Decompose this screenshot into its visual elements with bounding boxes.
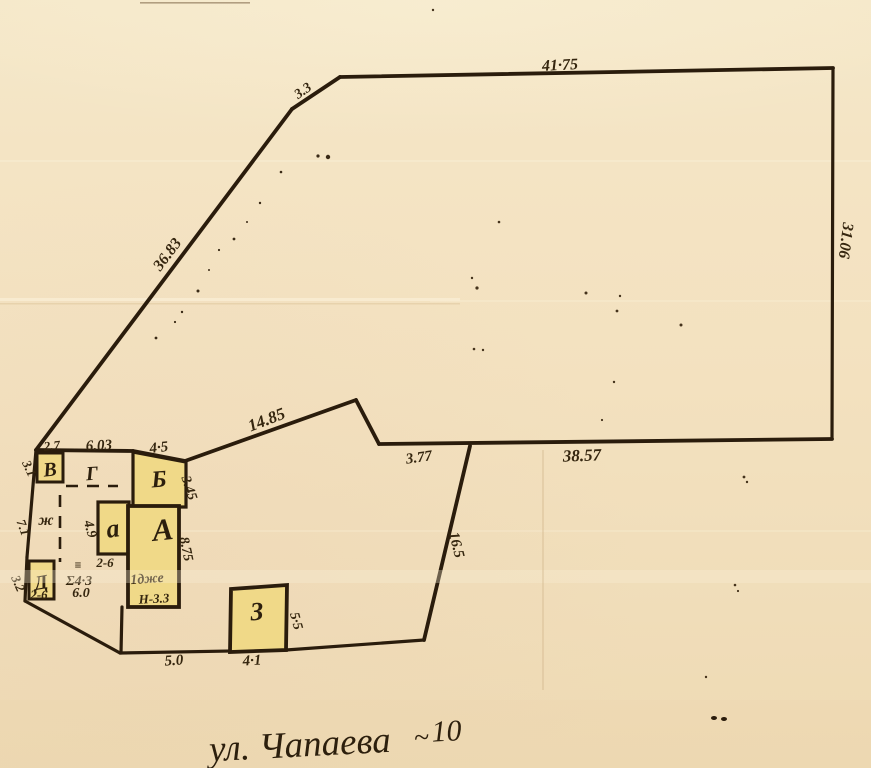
svg-text:5.0: 5.0: [164, 652, 184, 669]
svg-text:Б: Б: [149, 466, 167, 493]
svg-text:6.0: 6.0: [72, 586, 90, 601]
svg-text:~: ~: [413, 722, 430, 754]
svg-text:10: 10: [431, 714, 463, 749]
svg-text:В: В: [41, 458, 58, 481]
svg-text:2-6: 2-6: [95, 555, 114, 570]
svg-text:4·1: 4·1: [241, 653, 262, 670]
svg-text:≡: ≡: [75, 558, 82, 572]
svg-text:6.03: 6.03: [85, 437, 113, 454]
svg-text:38.57: 38.57: [562, 445, 603, 465]
svg-text:З: З: [248, 596, 265, 626]
svg-text:2-6: 2-6: [29, 587, 48, 602]
svg-text:41·75: 41·75: [541, 56, 579, 75]
svg-text:Н-3.3: Н-3.3: [137, 590, 170, 607]
svg-text:4·5: 4·5: [148, 439, 170, 457]
svg-text:Г: Г: [84, 463, 100, 486]
svg-text:2.7: 2.7: [42, 437, 61, 453]
svg-text:ж: ж: [37, 512, 53, 529]
